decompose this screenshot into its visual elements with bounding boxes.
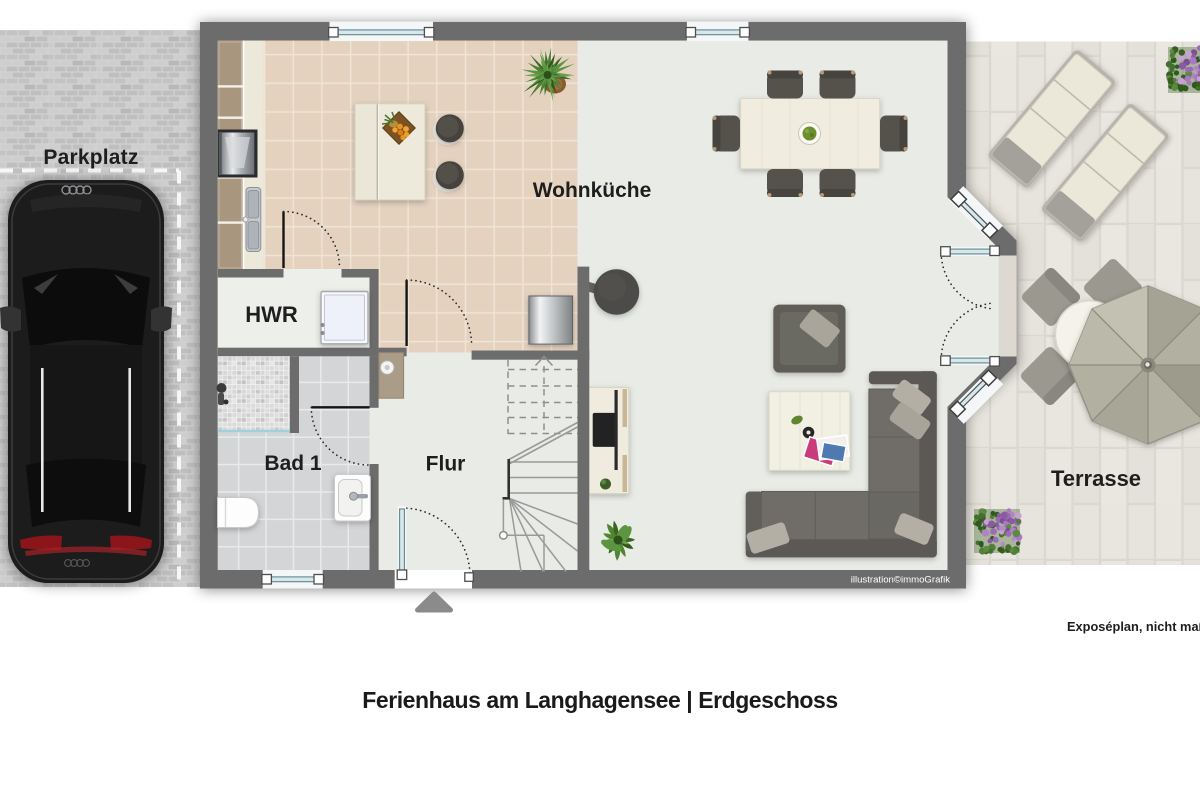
svg-text:Parkplatz: Parkplatz: [43, 146, 138, 169]
svg-text:Flur: Flur: [426, 453, 466, 476]
svg-text:illustration©immoGrafik: illustration©immoGrafik: [851, 575, 950, 586]
svg-text:HWR: HWR: [245, 302, 298, 327]
svg-text:Terrasse: Terrasse: [1051, 466, 1141, 491]
svg-text:Exposéplan, nicht maßstäblich: Exposéplan, nicht maßstäblich: [1067, 619, 1200, 634]
svg-text:Ferienhaus am Langhagensee | E: Ferienhaus am Langhagensee | Erdgeschoss: [362, 687, 837, 713]
svg-text:Wohnküche: Wohnküche: [533, 179, 652, 202]
svg-text:Bad 1: Bad 1: [264, 452, 322, 475]
